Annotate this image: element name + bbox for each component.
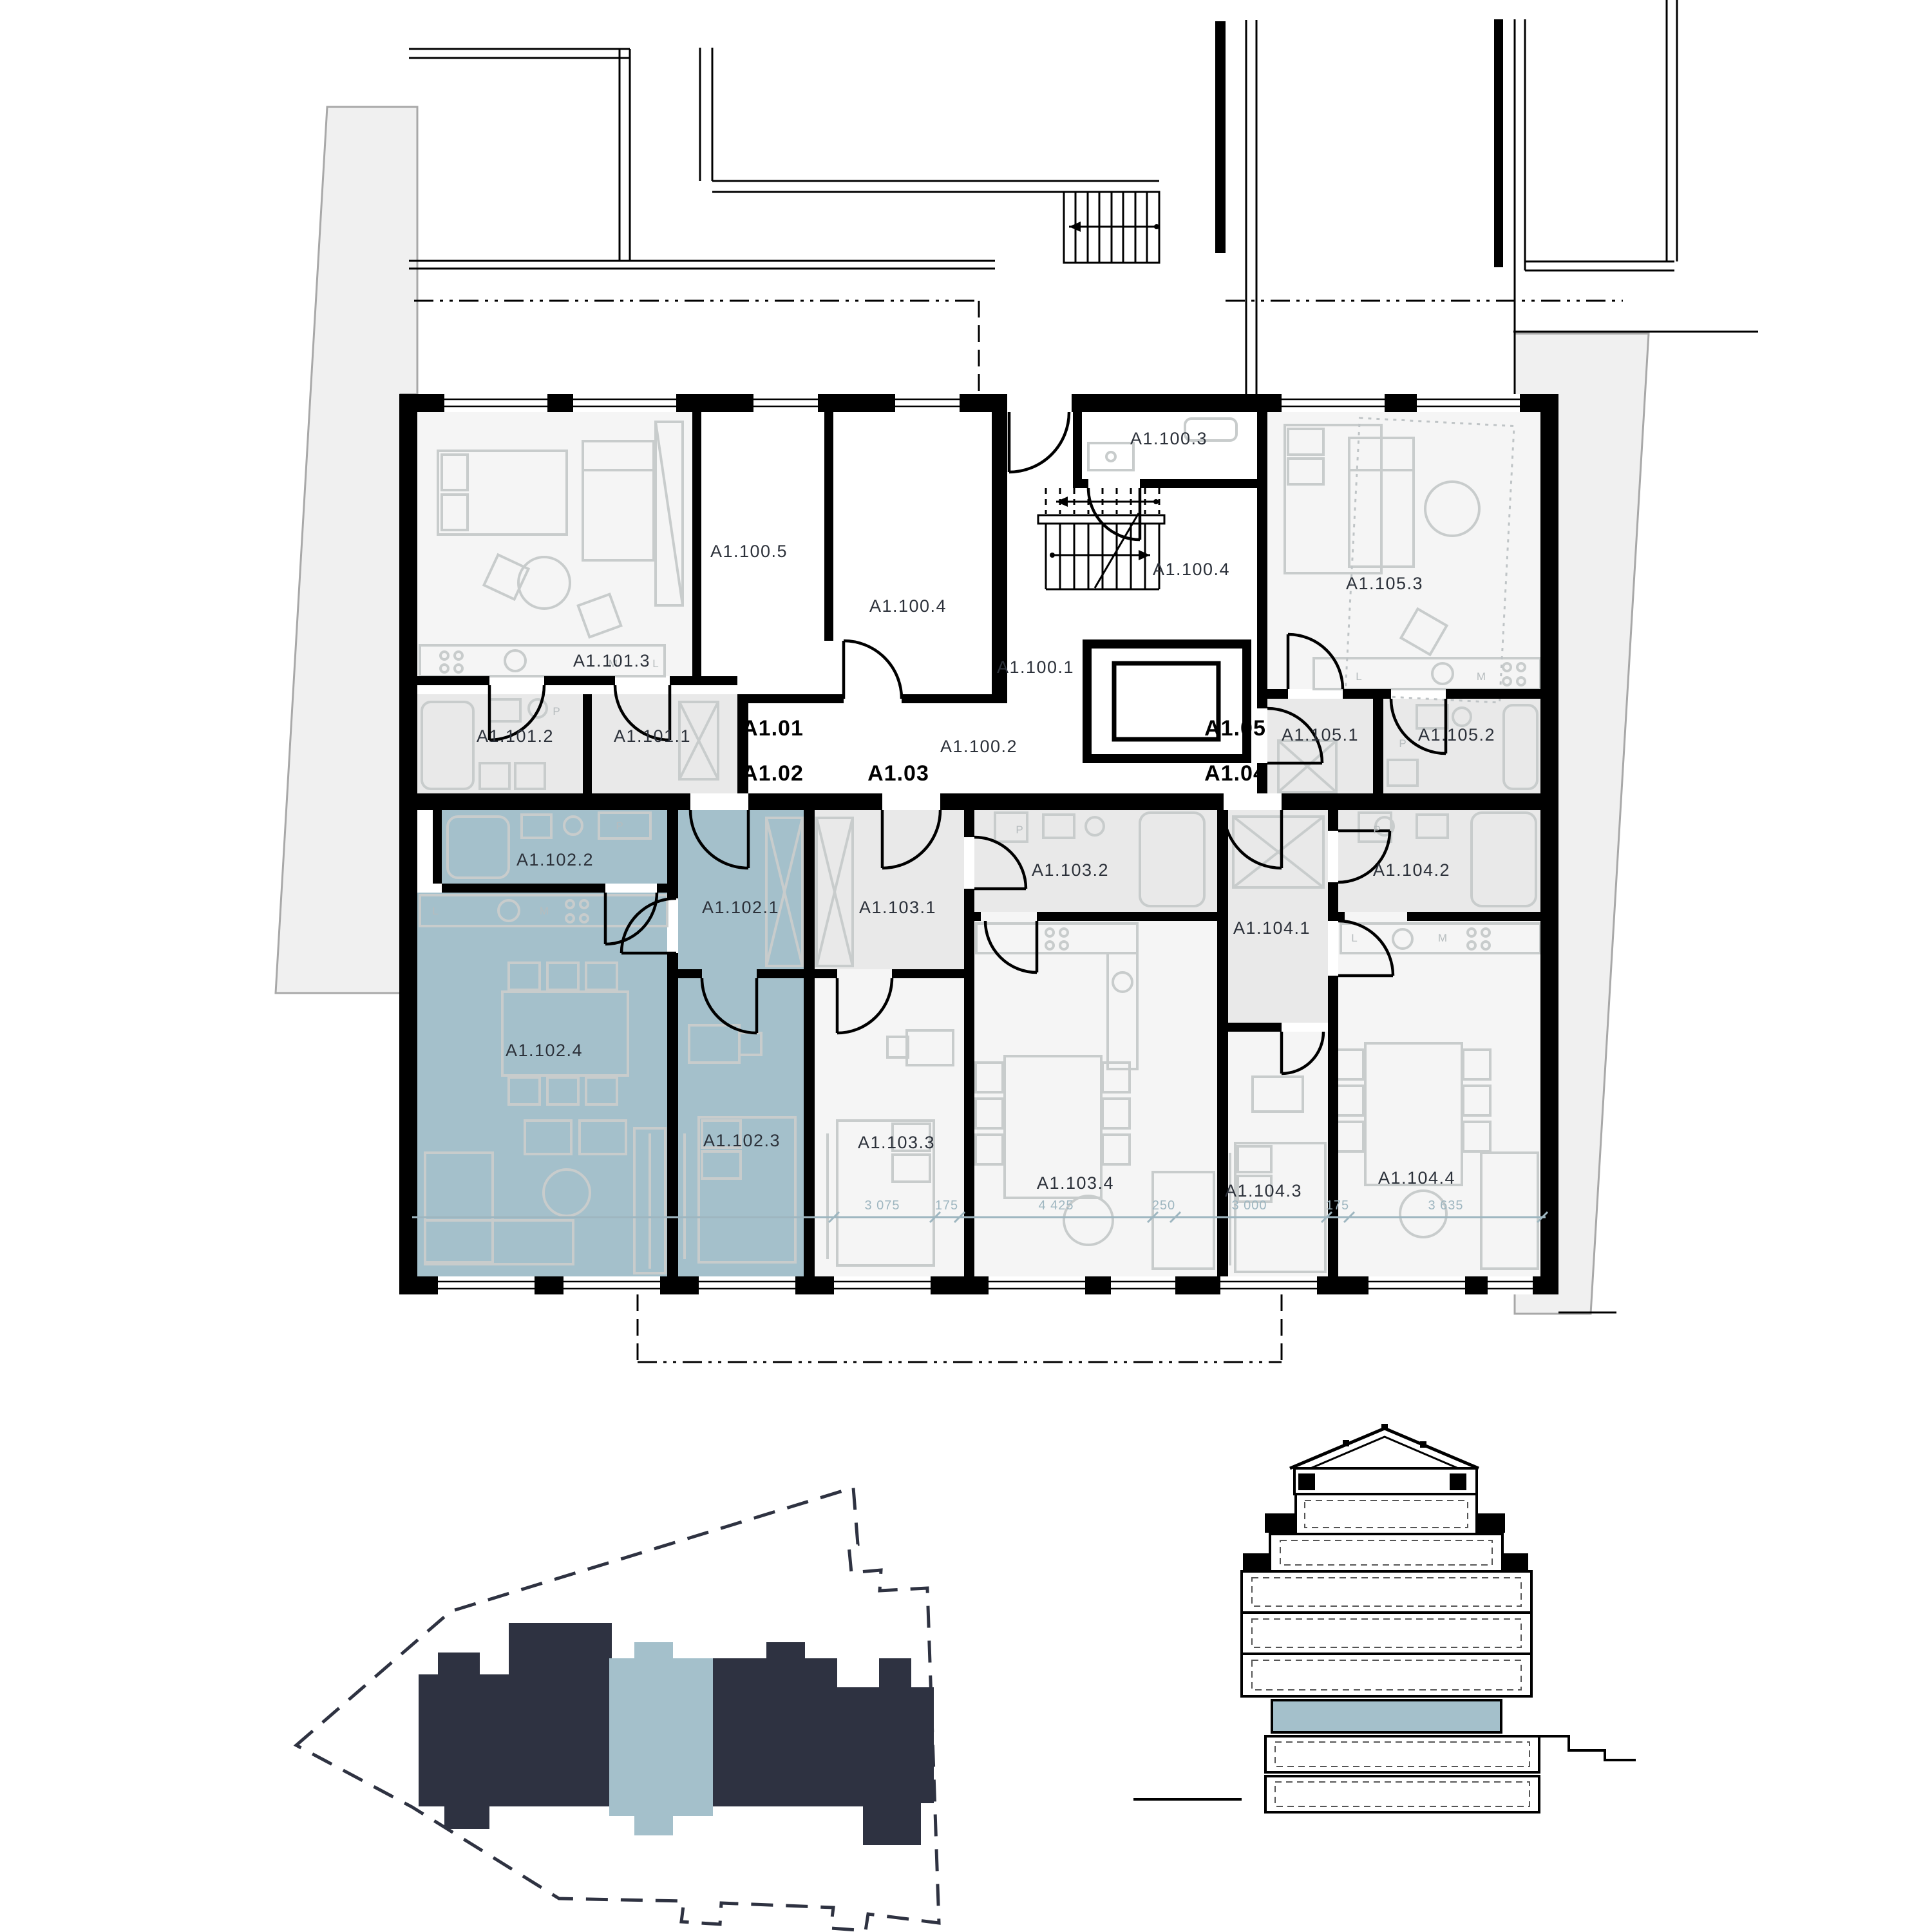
washer-letter: P (616, 820, 623, 832)
apartment-label-a1-01: A1.01 (742, 716, 804, 741)
site-key-plan (296, 1488, 939, 1931)
room-label: A1.103.3 (858, 1133, 935, 1152)
room-label: A1.100.3 (1130, 429, 1207, 448)
dimension-value: 3 075 (864, 1198, 900, 1213)
room-label: A1.102.3 (703, 1131, 781, 1150)
dishwasher-letter: M (540, 905, 549, 917)
party-wall-context (1215, 21, 1226, 253)
dishwasher-letter: M (1477, 670, 1486, 683)
room-label: A1.102.1 (702, 898, 779, 917)
site-building-right (713, 1642, 934, 1845)
room-a1-105-2 (1383, 699, 1540, 793)
room-a1-103-1 (815, 810, 964, 969)
fridge-letter: L (652, 658, 658, 670)
building-section (1133, 1424, 1636, 1812)
dimension-value: 3 635 (1428, 1198, 1463, 1213)
fridge-letter: L (1356, 670, 1361, 683)
section-highlighted-floor (1272, 1700, 1501, 1732)
room-label: A1.105.1 (1282, 725, 1359, 744)
washer-letter: P (1016, 824, 1023, 836)
room-a1-102-2-highlight (442, 810, 667, 884)
floor-plan-svg: 3 075 175 4 425 250 3 000 175 3 635 M L … (0, 0, 1932, 1932)
room-a1-102-4-highlight (417, 893, 667, 1276)
room-label: A1.102.4 (506, 1041, 583, 1060)
room-label: A1.104.2 (1373, 860, 1450, 880)
room-a1-104-1 (1228, 810, 1328, 1023)
room-label: A1.100.4 (1153, 560, 1230, 579)
room-label: A1.103.4 (1037, 1173, 1114, 1193)
main-floor-plan: 3 075 175 4 425 250 3 000 175 3 635 M L … (399, 394, 1558, 1294)
drawing-sheet: 3 075 175 4 425 250 3 000 175 3 635 M L … (0, 0, 1932, 1932)
dimension-value: 4 425 (1038, 1198, 1074, 1213)
washer-letter: P (1399, 737, 1406, 750)
room-label: A1.101.1 (614, 726, 691, 746)
room-label: A1.101.3 (573, 651, 650, 670)
room-label: A1.104.3 (1225, 1181, 1302, 1200)
site-building-highlight (609, 1642, 713, 1835)
dimension-value: 175 (935, 1198, 958, 1213)
room-label: A1.103.2 (1032, 860, 1109, 880)
washer-letter: P (553, 705, 560, 717)
room-label: A1.100.5 (710, 542, 788, 561)
room-a1-104-3 (1228, 1032, 1328, 1276)
dishwasher-letter: M (1438, 932, 1447, 944)
room-label: A1.100.4 (869, 596, 947, 616)
elevator-icon (1087, 644, 1247, 759)
room-label: A1.105.3 (1346, 574, 1423, 593)
room-label: A1.105.2 (1418, 725, 1495, 744)
fridge-letter: L (432, 905, 438, 917)
room-label: A1.100.1 (997, 658, 1074, 677)
room-label: A1.104.1 (1233, 918, 1311, 938)
dimension-value: 175 (1326, 1198, 1349, 1213)
apartment-label-a1-03: A1.03 (867, 761, 929, 786)
neighbour-building-left (276, 107, 417, 993)
room-label: A1.100.2 (940, 737, 1018, 756)
exterior-stairs-icon (1064, 192, 1159, 263)
entrance-opening (1007, 394, 1072, 412)
room-label: A1.104.4 (1378, 1168, 1455, 1188)
apartment-label-a1-04: A1.04 (1204, 761, 1266, 786)
dimension-value: 250 (1152, 1198, 1175, 1213)
room-label: A1.101.2 (477, 726, 554, 746)
site-building-left (419, 1623, 612, 1829)
room-a1-104-4 (1338, 912, 1540, 1276)
washer-letter: P (1373, 824, 1380, 836)
apartment-label-a1-02: A1.02 (742, 761, 804, 786)
section-roof (1290, 1428, 1479, 1468)
dimension-value: 3 000 (1231, 1198, 1267, 1213)
apartment-label-a1-05: A1.05 (1204, 716, 1266, 741)
room-label: A1.103.1 (859, 898, 936, 917)
room-label: A1.102.2 (516, 850, 594, 869)
fridge-letter: L (1351, 932, 1357, 944)
